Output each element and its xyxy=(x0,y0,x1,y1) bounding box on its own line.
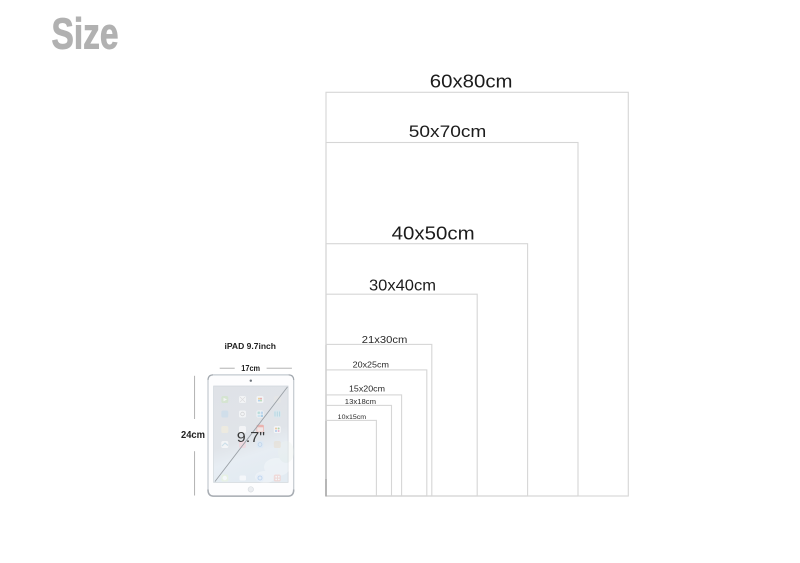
svg-text:iPAD 9.7inch: iPAD 9.7inch xyxy=(225,342,277,351)
svg-text:15x20cm: 15x20cm xyxy=(349,384,385,394)
svg-text:60x80cm: 60x80cm xyxy=(430,72,513,92)
svg-text:10x15cm: 10x15cm xyxy=(338,414,367,421)
svg-text:13x18cm: 13x18cm xyxy=(345,397,376,406)
svg-text:Size: Size xyxy=(52,10,119,59)
svg-text:40x50cm: 40x50cm xyxy=(392,223,475,243)
svg-text:21x30cm: 21x30cm xyxy=(362,335,408,346)
svg-text:20x25cm: 20x25cm xyxy=(353,359,389,369)
svg-text:17cm: 17cm xyxy=(241,364,260,373)
svg-text:50x70cm: 50x70cm xyxy=(409,122,487,141)
svg-text:30x40cm: 30x40cm xyxy=(369,278,436,295)
svg-text:24cm: 24cm xyxy=(181,430,205,441)
svg-text:9.7": 9.7" xyxy=(237,430,265,446)
